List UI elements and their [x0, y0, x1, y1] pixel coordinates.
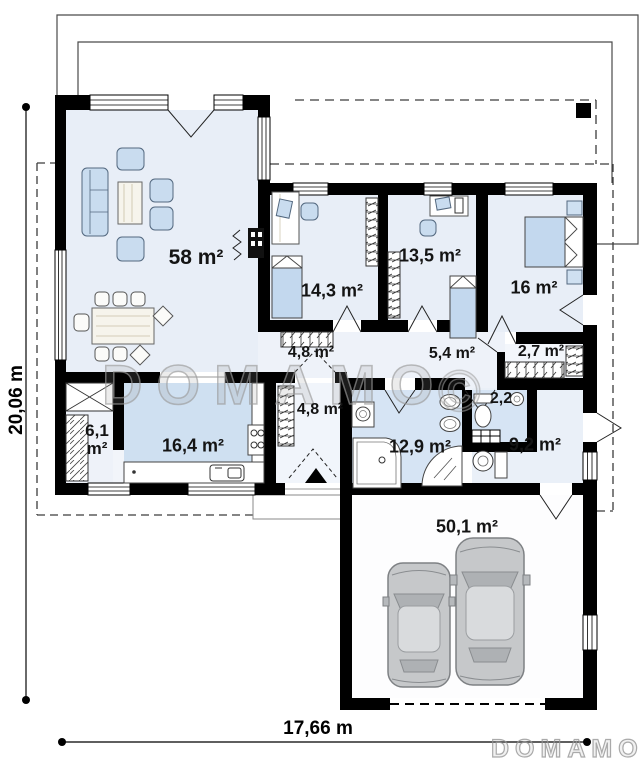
- floor-plan-page: DOMAMO © DOMAMO 58 m² 14,3 m² 13,5 m² 16…: [0, 0, 640, 768]
- dimension-width-label: 17,66 m: [283, 718, 353, 740]
- area-label-bedroom3: 16 m²: [510, 278, 557, 299]
- brand-logo: DOMAMO: [491, 735, 640, 764]
- area-label-corridor2: 5,4 m²: [429, 345, 475, 363]
- area-label-hall: 9,2 m²: [509, 435, 561, 456]
- area-label-utility: 6,1 m²: [76, 422, 118, 458]
- area-label-corridor1: 4,8 m²: [288, 344, 334, 362]
- watermark-copyright-icon: ©: [438, 358, 481, 425]
- area-label-kitchen: 16,4 m²: [162, 436, 224, 457]
- area-label-living-room: 58 m²: [169, 246, 224, 270]
- terrace-column: [576, 103, 591, 118]
- car-left: [383, 563, 455, 687]
- area-label-vestibule: 4,8 m²: [297, 401, 343, 419]
- area-label-garage: 50,1 m²: [436, 517, 498, 538]
- area-label-closet: 2,7 m²: [518, 343, 564, 361]
- dimension-height-label: 20,06 m: [6, 365, 28, 435]
- area-label-bedroom2: 13,5 m²: [399, 246, 461, 267]
- terrace-outline: [270, 100, 613, 164]
- watermark-text: DOMAMO: [102, 352, 447, 417]
- entrance-porch: [253, 495, 345, 519]
- area-label-wc: 2,2: [490, 390, 512, 408]
- car-right: [450, 538, 530, 685]
- area-label-bathroom: 12,9 m²: [389, 437, 451, 458]
- area-label-bedroom1: 14,3 m²: [301, 281, 363, 302]
